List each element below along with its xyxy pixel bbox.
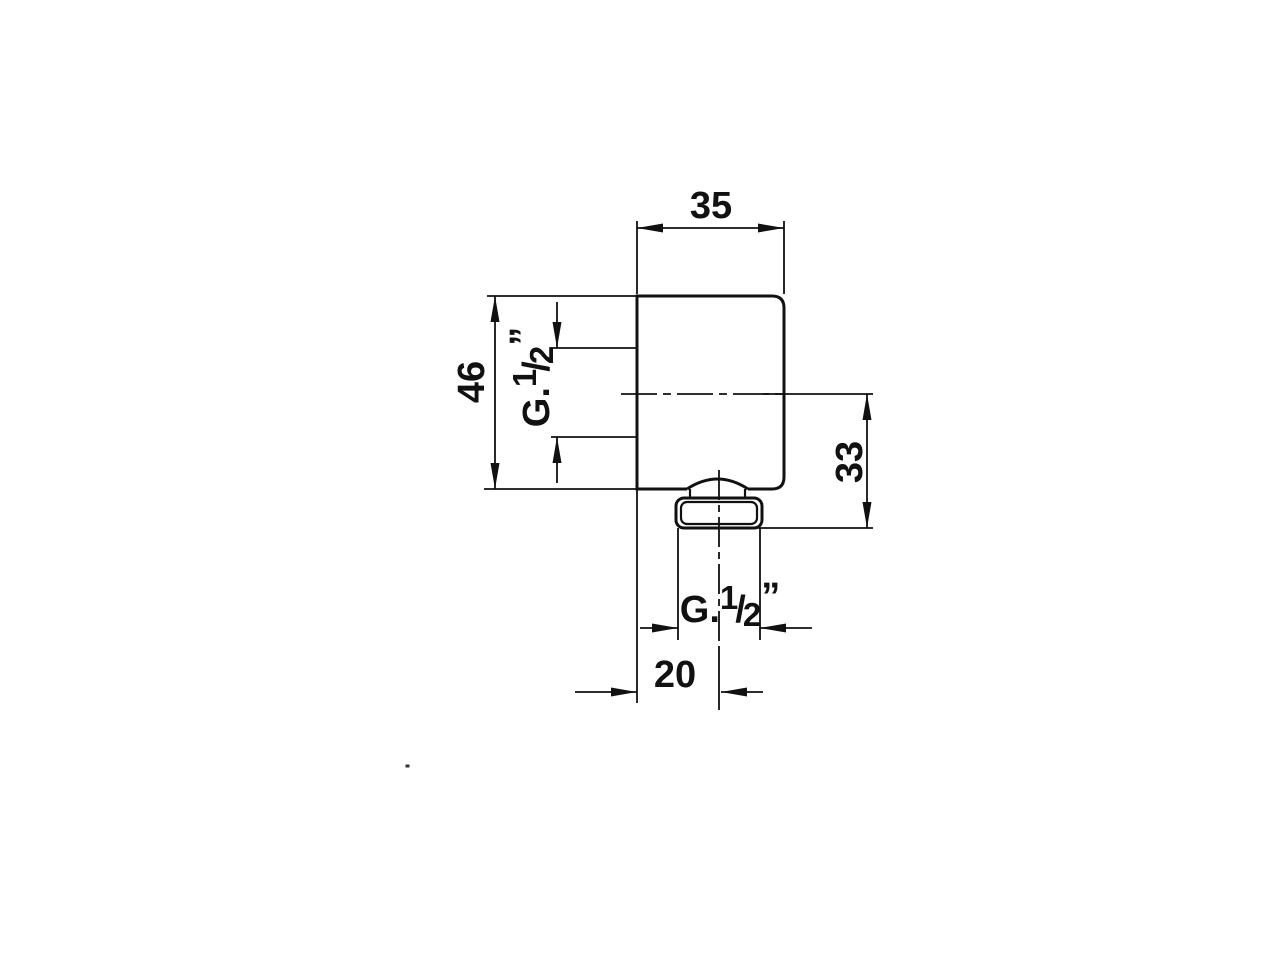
- inlet-thread-label: G.1/2”: [503, 327, 560, 427]
- arrowhead-down: [553, 322, 562, 348]
- dimension-outlet-thread: G.1/2”: [640, 576, 812, 633]
- arrowhead-bottom: [863, 502, 872, 528]
- arrowhead-top: [863, 394, 872, 420]
- thread-prefix: G.: [516, 387, 558, 427]
- dim-value-46: 46: [451, 361, 493, 403]
- outlet-thread-label: G.1/2”: [680, 576, 780, 633]
- arrowhead-right: [652, 624, 678, 633]
- dimension-top-width: 35: [637, 185, 784, 294]
- arrowhead-up: [553, 437, 562, 463]
- arrowhead-top: [491, 296, 500, 322]
- dim-value-20: 20: [654, 654, 696, 696]
- dimension-right-depth: 33: [758, 394, 873, 528]
- thread-inch-mark: ”: [761, 576, 780, 618]
- dimension-inlet-thread: G.1/2”: [503, 302, 638, 483]
- arrowhead-right: [611, 688, 637, 697]
- thread-denominator: 2: [743, 596, 761, 633]
- technical-drawing: 35 46 G.1/2”: [0, 0, 1280, 960]
- outlet-dome: [687, 479, 748, 489]
- dim-value-35: 35: [690, 185, 732, 227]
- print-speck: [406, 765, 410, 768]
- arrowhead-left: [721, 688, 747, 697]
- body-outline: [637, 296, 784, 489]
- arrowhead-right: [758, 224, 784, 233]
- arrowhead-left: [637, 224, 663, 233]
- thread-denominator: 2: [523, 346, 560, 364]
- drawing-canvas: 35 46 G.1/2”: [0, 0, 1280, 960]
- thread-prefix: G.: [680, 589, 720, 631]
- arrowhead-bottom: [491, 463, 500, 489]
- thread-inch-mark: ”: [503, 327, 545, 346]
- dim-value-33: 33: [829, 441, 871, 483]
- arrowhead-left: [760, 624, 786, 633]
